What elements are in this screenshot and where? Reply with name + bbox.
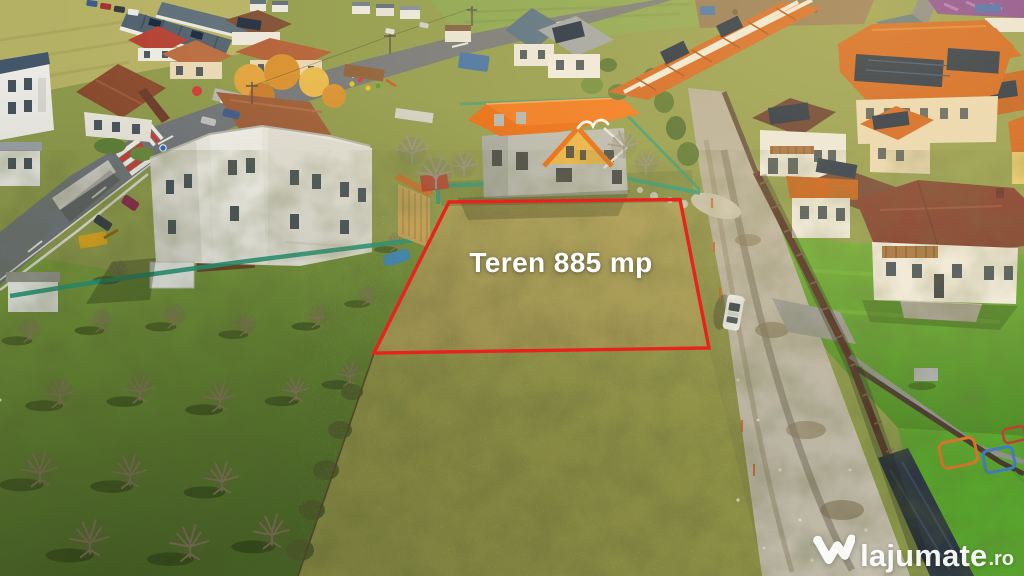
watermark-tld: .ro [988, 549, 1014, 569]
watermark-brand: lajumate [860, 543, 987, 569]
watermark: lajumate .ro [811, 529, 1014, 569]
plot-area-label: Teren 885 mp [469, 247, 652, 278]
photo-scene: Teren 885 mp [0, 0, 1024, 576]
lajumate-w-logo-icon [811, 529, 855, 567]
aerial-photo: Teren 885 mp lajumate .ro [0, 0, 1024, 576]
